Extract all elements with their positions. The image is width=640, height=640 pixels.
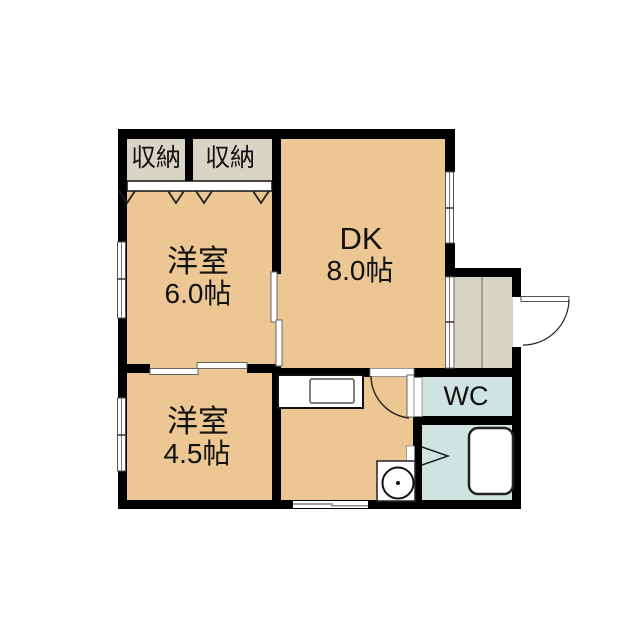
floor-plan-page: 収納 収納 洋室 6.0帖 DK 8.0帖 洋室 4.5帖 WC: [0, 0, 640, 640]
wall-closet-divider: [185, 139, 193, 183]
dk-label: DK: [339, 221, 382, 256]
entry-genkan-floor: [448, 270, 518, 374]
western6-label: 洋室: [167, 244, 229, 279]
wall-right-above-door: [512, 268, 521, 297]
entrance-door-jamb: [513, 297, 520, 347]
wall-dk-right-upper: [445, 129, 455, 172]
wall-dk-bottom-right: [414, 368, 521, 377]
floor-plan-drawing: 収納 収納 洋室 6.0帖 DK 8.0帖 洋室 4.5帖 WC: [0, 0, 640, 640]
washer-drain-dot: [396, 481, 400, 485]
entrance-door-arc: [523, 299, 569, 345]
window-western45: [118, 398, 126, 471]
wall-top: [118, 129, 455, 139]
closet-right-label: 収納: [205, 144, 255, 172]
dk-size: 8.0帖: [327, 255, 394, 286]
window-dk: [446, 172, 454, 243]
closet-left-label: 収納: [131, 144, 181, 172]
slider-dk-genkan: [446, 277, 455, 368]
bathtub: [469, 428, 513, 494]
window-kitchen: [293, 501, 368, 508]
western6-size: 6.0帖: [165, 278, 232, 309]
entrance-door-leaf: [521, 297, 569, 302]
window-western6: [118, 242, 126, 318]
entrance-door: [513, 297, 569, 348]
closet-front-track: [127, 181, 272, 191]
kitchen-sink: [310, 379, 354, 403]
western45-label: 洋室: [167, 404, 229, 439]
wall-rooms64-left: [118, 364, 150, 373]
door-wc: [414, 378, 422, 417]
wall-wc-bath: [413, 416, 521, 425]
wall-center-upper: [272, 129, 281, 274]
wc-label: WC: [444, 381, 489, 411]
western45-size: 4.5帖: [164, 438, 231, 469]
wall-genkan-top: [445, 268, 521, 277]
